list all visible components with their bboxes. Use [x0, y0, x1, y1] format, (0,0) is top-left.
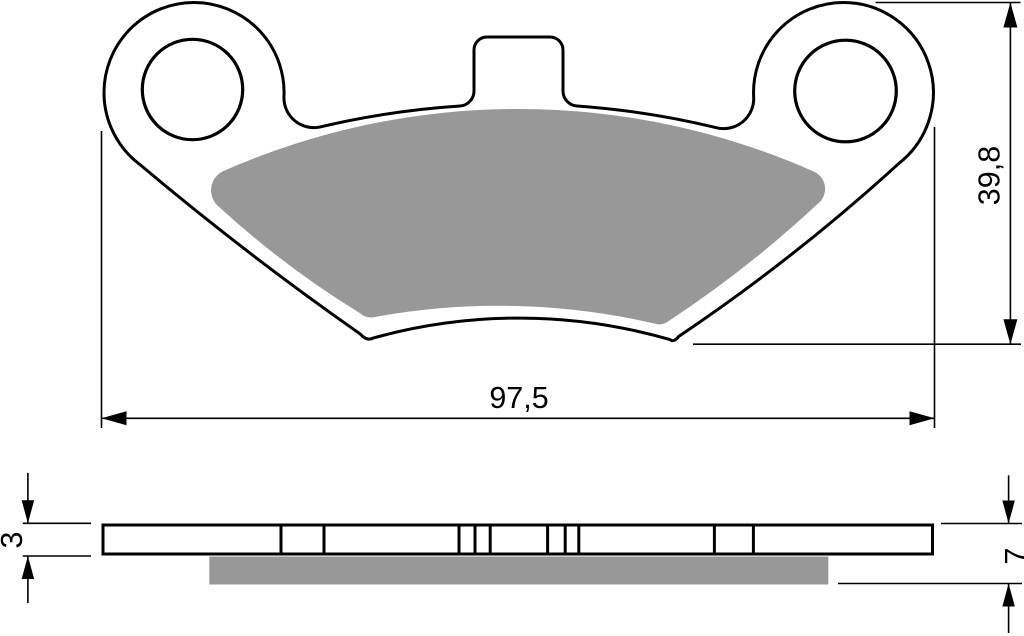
svg-text:7: 7: [999, 548, 1024, 565]
svg-text:39,8: 39,8: [973, 146, 1007, 205]
svg-text:3: 3: [0, 532, 29, 549]
svg-text:97,5: 97,5: [489, 381, 548, 415]
